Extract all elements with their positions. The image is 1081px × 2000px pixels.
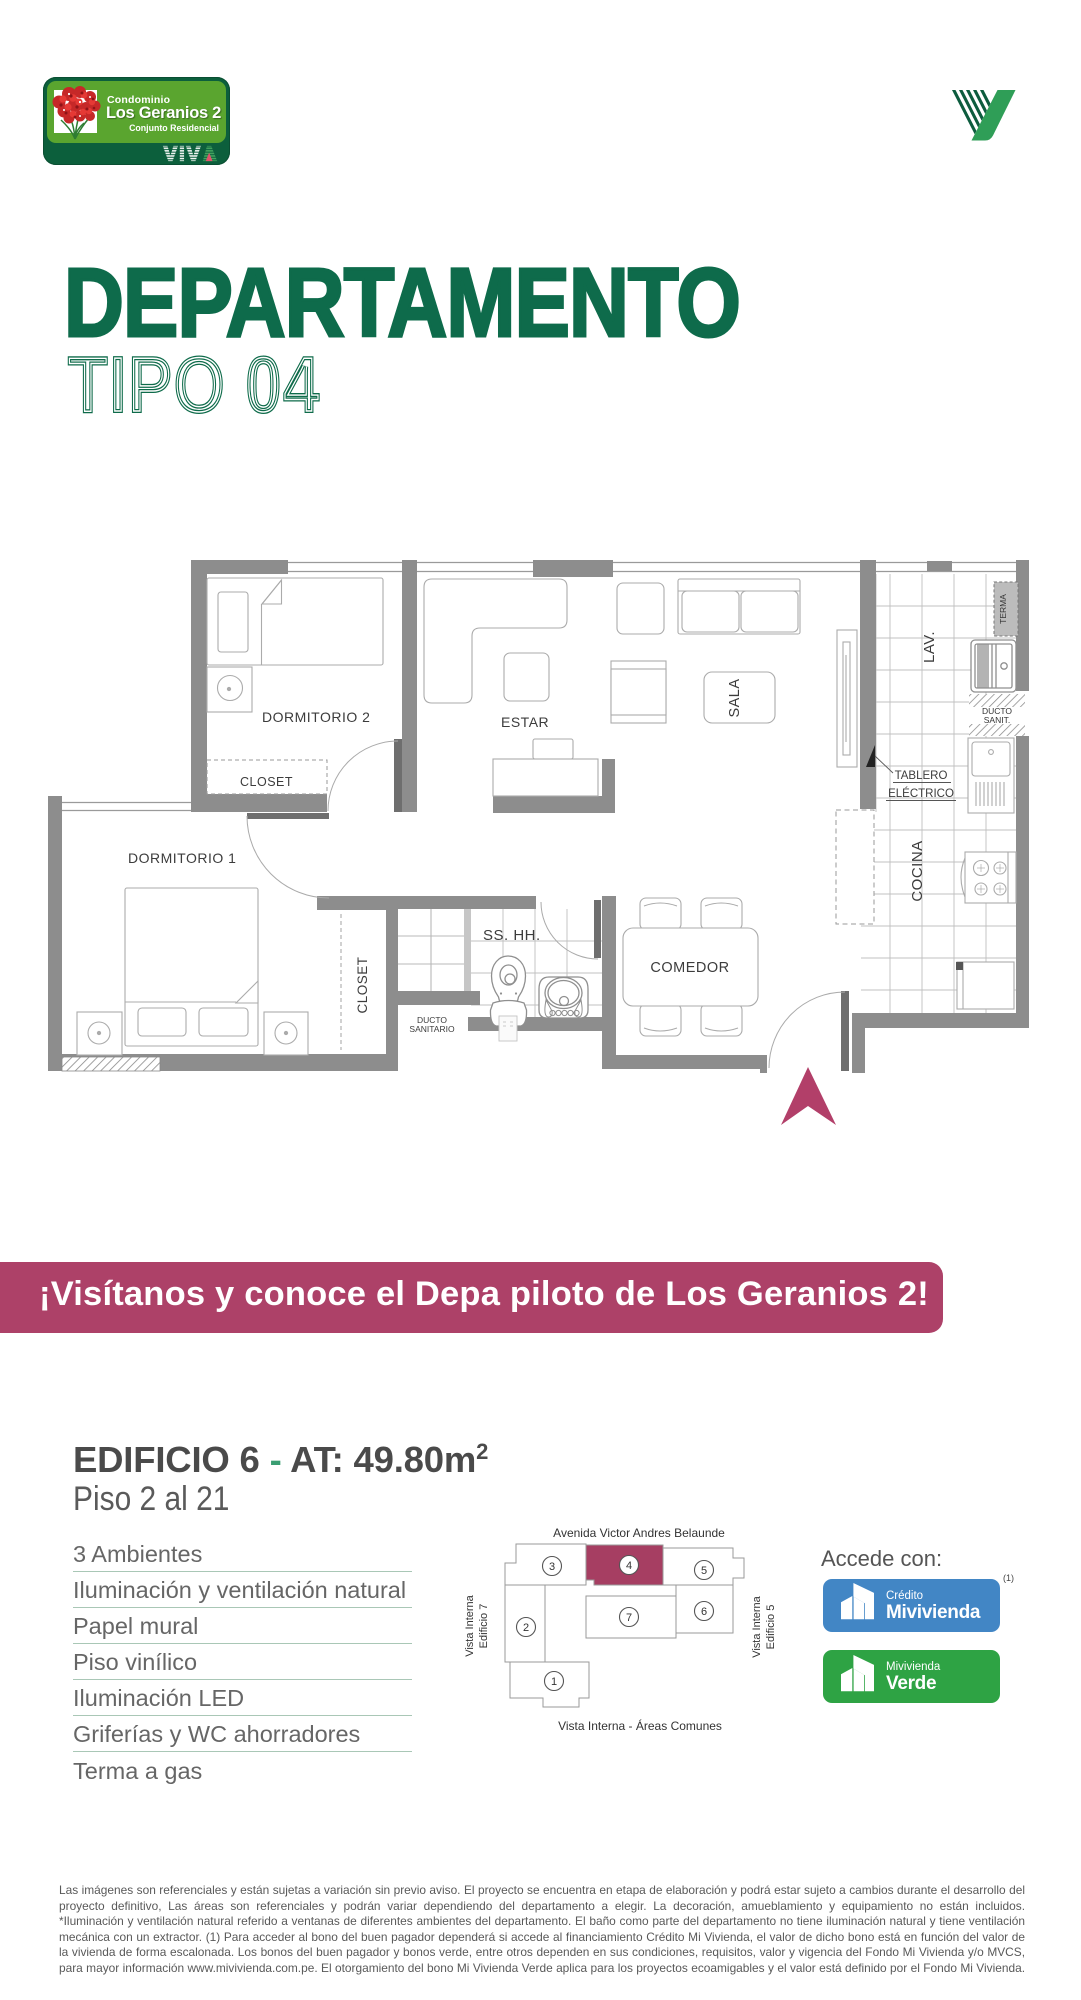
svg-text:TABLERO: TABLERO (895, 770, 948, 782)
svg-text:COCINA: COCINA (909, 840, 926, 901)
svg-text:Vista Interna - Áreas Comunes: Vista Interna - Áreas Comunes (558, 1718, 722, 1733)
svg-text:6: 6 (701, 1606, 707, 1618)
svg-text:Vista Interna: Vista Interna (751, 1595, 763, 1657)
svg-text:SS. HH.: SS. HH. (483, 927, 541, 944)
svg-text:SANITARIO: SANITARIO (409, 1024, 455, 1034)
svg-text:Edificio 5: Edificio 5 (765, 1605, 777, 1650)
svg-text:7: 7 (626, 1612, 632, 1624)
svg-text:COMEDOR: COMEDOR (650, 960, 729, 976)
svg-text:2: 2 (523, 1622, 529, 1634)
svg-text:3: 3 (549, 1561, 555, 1573)
svg-text:Avenida Victor Andres Belaunde: Avenida Victor Andres Belaunde (553, 1526, 725, 1540)
svg-text:DORMITORIO 1: DORMITORIO 1 (128, 850, 236, 866)
svg-text:TIPO 04: TIPO 04 (67, 354, 320, 418)
svg-text:SANIT.: SANIT. (984, 715, 1010, 725)
svg-text:LAV.: LAV. (921, 631, 938, 663)
svg-text:1: 1 (551, 1676, 557, 1688)
svg-text:5: 5 (701, 1565, 707, 1577)
svg-text:CLOSET: CLOSET (355, 956, 370, 1013)
svg-text:TERMA: TERMA (998, 594, 1008, 624)
svg-text:Vista Interna: Vista Interna (464, 1594, 476, 1656)
svg-text:ESTAR: ESTAR (501, 714, 549, 730)
svg-text:CLOSET: CLOSET (240, 775, 293, 789)
svg-text:4: 4 (626, 1560, 632, 1572)
svg-text:SALA: SALA (727, 678, 743, 717)
svg-text:DORMITORIO 2: DORMITORIO 2 (262, 709, 370, 725)
svg-text:Edificio 7: Edificio 7 (478, 1604, 490, 1649)
svg-text:ELÉCTRICO: ELÉCTRICO (888, 787, 954, 800)
